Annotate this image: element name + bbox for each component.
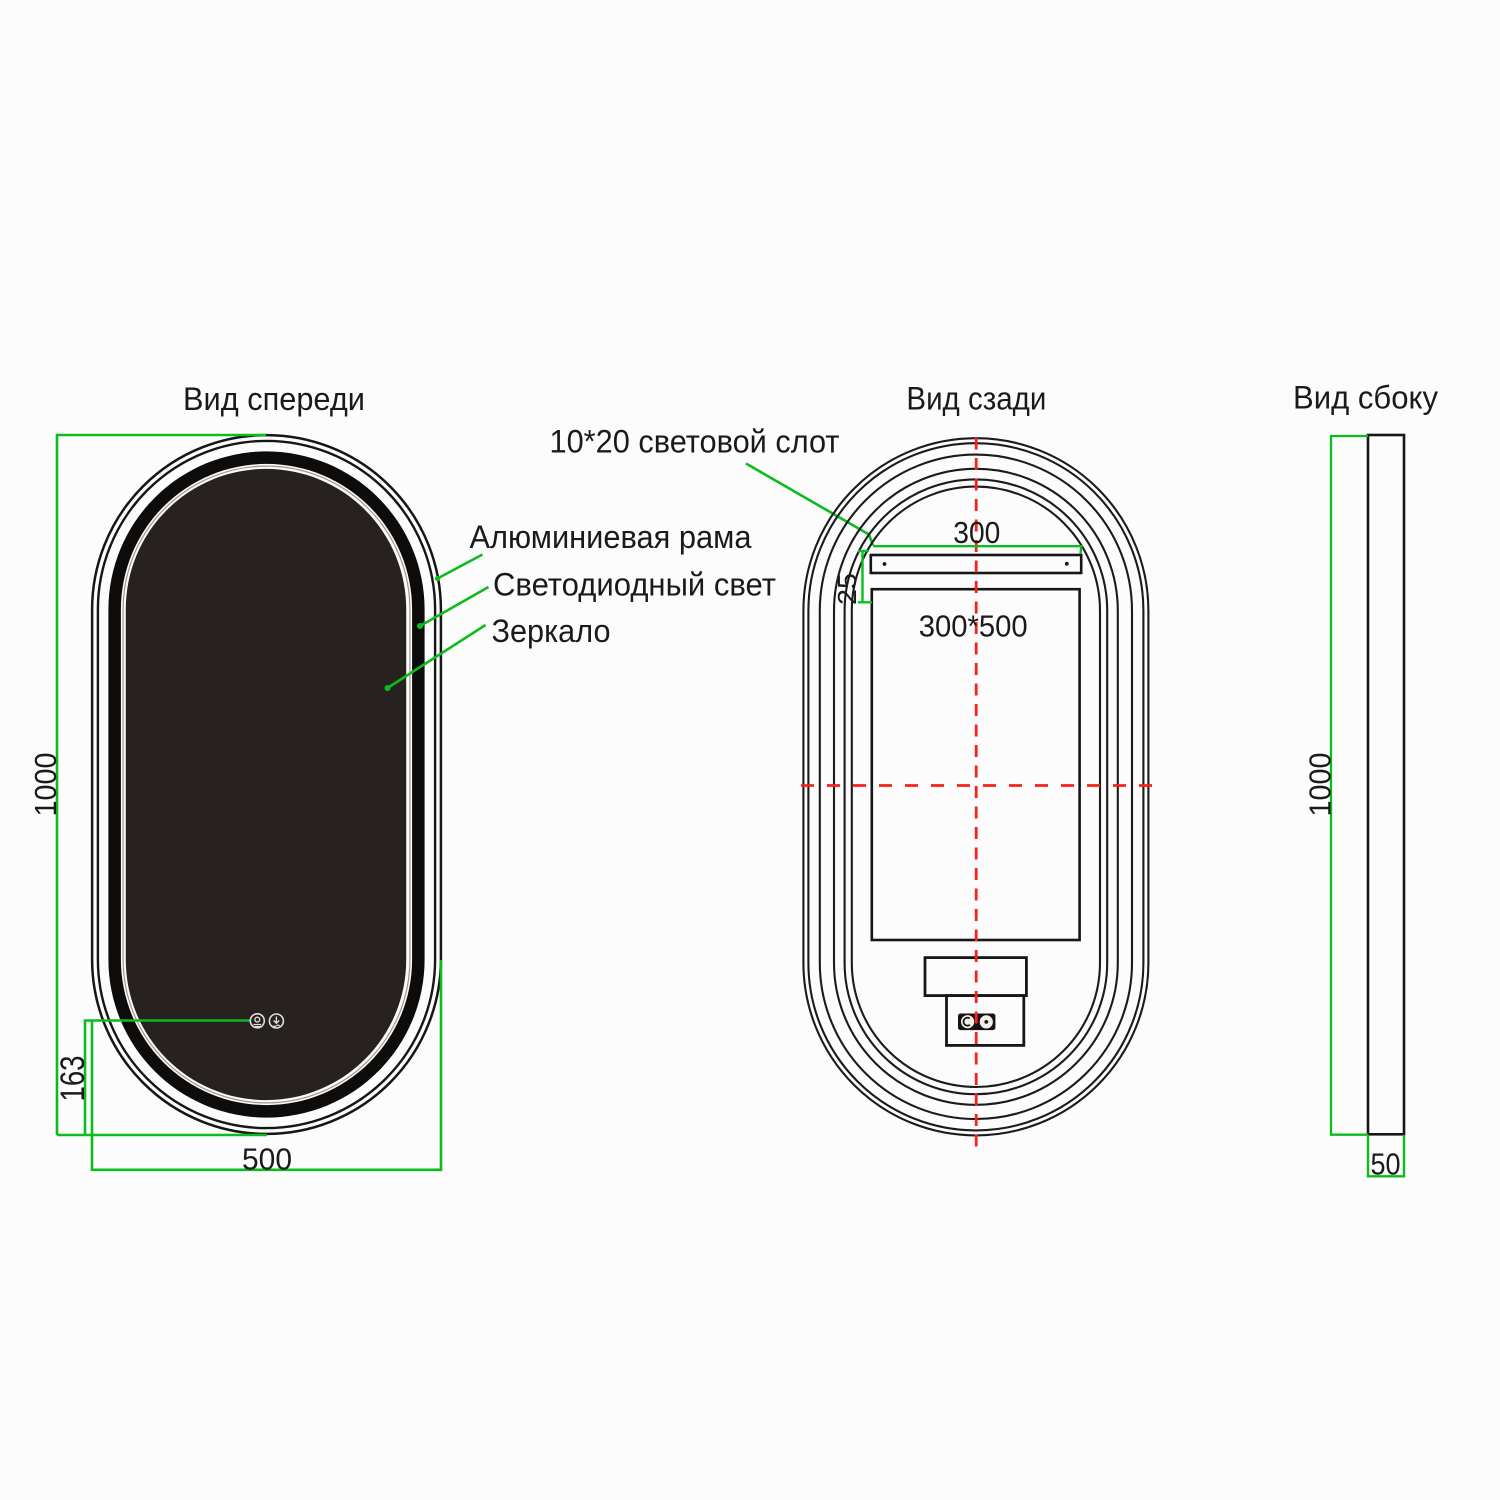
- svg-text:10*20 световой слот: 10*20 световой слот: [550, 424, 840, 460]
- svg-text:300*500: 300*500: [919, 608, 1028, 643]
- svg-text:Вид сзади: Вид сзади: [906, 381, 1046, 417]
- svg-text:300: 300: [953, 515, 1000, 550]
- svg-text:1000: 1000: [1303, 753, 1338, 817]
- svg-text:50: 50: [1371, 1147, 1401, 1182]
- svg-text:500: 500: [242, 1142, 292, 1177]
- svg-text:Вид спереди: Вид спереди: [183, 381, 365, 417]
- svg-text:Зеркало: Зеркало: [492, 613, 611, 649]
- svg-text:Светодиодный свет: Светодиодный свет: [493, 567, 776, 603]
- svg-text:Алюминиевая рама: Алюминиевая рама: [470, 519, 752, 555]
- svg-text:163: 163: [54, 1056, 92, 1102]
- svg-text:1000: 1000: [28, 753, 63, 817]
- svg-text:Вид сбоку: Вид сбоку: [1293, 380, 1439, 416]
- svg-text:25: 25: [832, 573, 862, 605]
